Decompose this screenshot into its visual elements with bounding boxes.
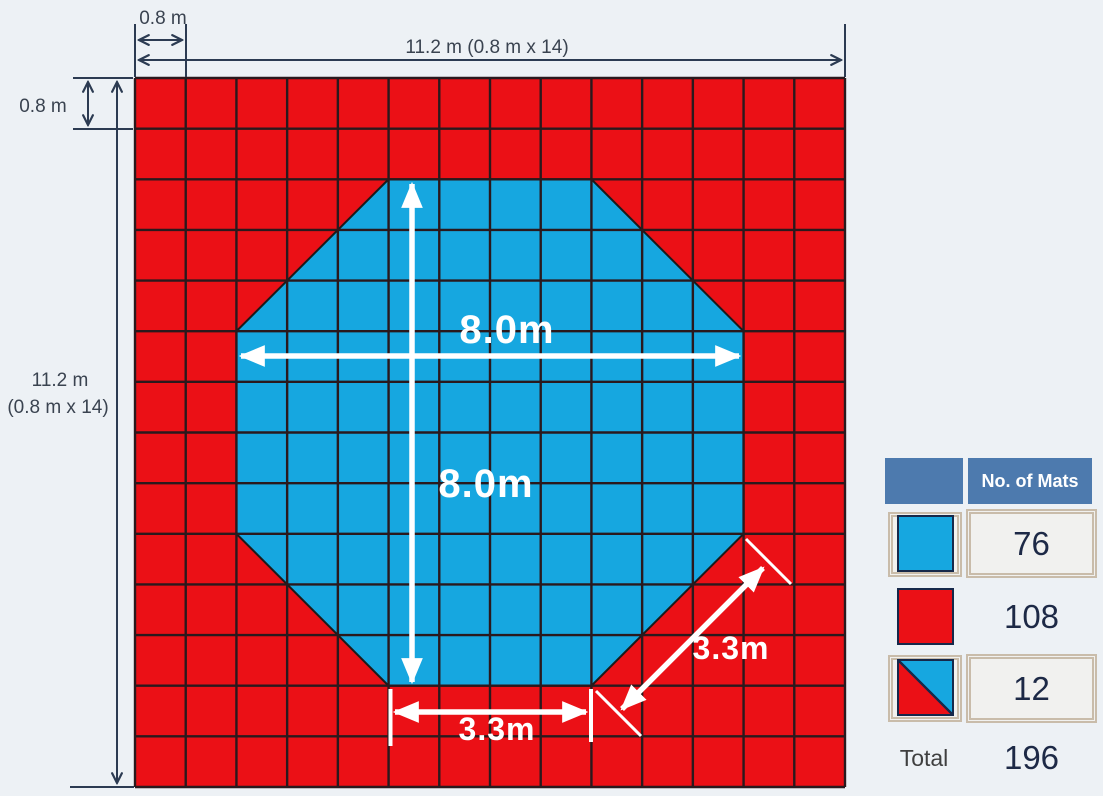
mat-layout-diagram: 0.8 m11.2 m (0.8 m x 14)0.8 m11.2 m(0.8 … bbox=[0, 0, 1103, 796]
half-mat-count: 12 bbox=[966, 654, 1097, 723]
blue-mat-count: 76 bbox=[966, 509, 1097, 578]
red-mat-count: 108 bbox=[966, 585, 1097, 648]
total-label: Total bbox=[885, 740, 963, 776]
red-mat-count-value: 108 bbox=[1004, 598, 1059, 636]
label-cell-width-top: 0.8 m bbox=[139, 8, 187, 29]
half-mat-count-value: 12 bbox=[1013, 670, 1050, 708]
blue-mat-count-value: 76 bbox=[1013, 525, 1050, 563]
label-bottom-edge: 3.3m bbox=[459, 711, 536, 747]
label-total-height-left-line2: (0.8 m x 14) bbox=[7, 397, 108, 418]
total-count: 196 bbox=[966, 738, 1097, 778]
label-cell-height-left: 0.8 m bbox=[19, 96, 67, 117]
table-header-no-of-mats: No. of Mats bbox=[968, 458, 1092, 504]
label-octagon-height: 8.0m bbox=[438, 462, 533, 506]
red-mat-swatch bbox=[897, 588, 954, 645]
table-header-swatch-cell bbox=[885, 458, 963, 504]
blue-mat-swatch bbox=[897, 515, 954, 572]
mat-count-table: No. of Mats 76 108 12 Total 196 bbox=[885, 458, 1098, 790]
label-octagon-width: 8.0m bbox=[459, 308, 554, 352]
label-diagonal-edge: 3.3m bbox=[693, 630, 770, 666]
label-total-width-top: 11.2 m (0.8 m x 14) bbox=[405, 37, 568, 58]
half-mat-swatch bbox=[897, 659, 954, 716]
label-total-height-left-line1: 11.2 m bbox=[32, 370, 89, 391]
total-text: Total bbox=[900, 745, 949, 772]
total-count-value: 196 bbox=[1004, 739, 1059, 777]
no-of-mats-label: No. of Mats bbox=[982, 471, 1079, 492]
